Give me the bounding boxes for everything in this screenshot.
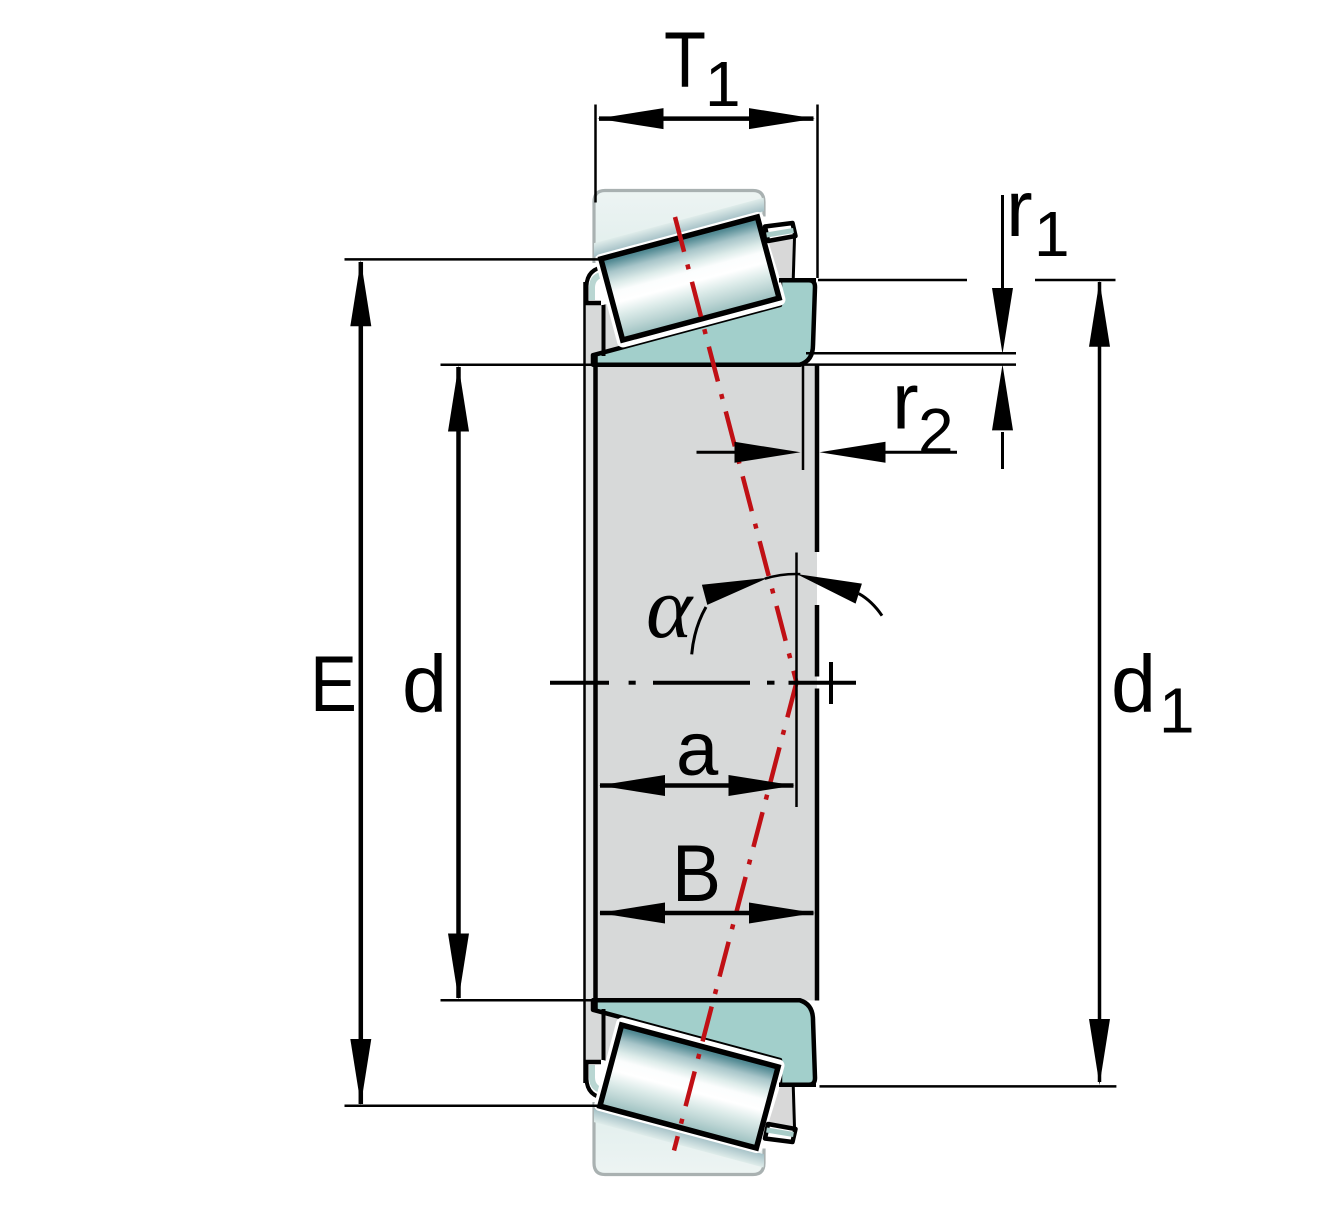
svg-text:d: d <box>402 640 447 730</box>
svg-text:T: T <box>664 15 706 104</box>
svg-text:1: 1 <box>1034 198 1070 270</box>
svg-text:B: B <box>672 829 721 919</box>
svg-text:1: 1 <box>705 48 741 120</box>
svg-text:1: 1 <box>1159 675 1195 747</box>
svg-text:d: d <box>1111 640 1156 730</box>
svg-text:r: r <box>1006 164 1033 253</box>
svg-text:2: 2 <box>918 395 954 467</box>
svg-text:α: α <box>646 560 694 657</box>
svg-text:E: E <box>310 639 357 728</box>
svg-text:r: r <box>892 357 919 446</box>
svg-text:a: a <box>676 707 719 792</box>
